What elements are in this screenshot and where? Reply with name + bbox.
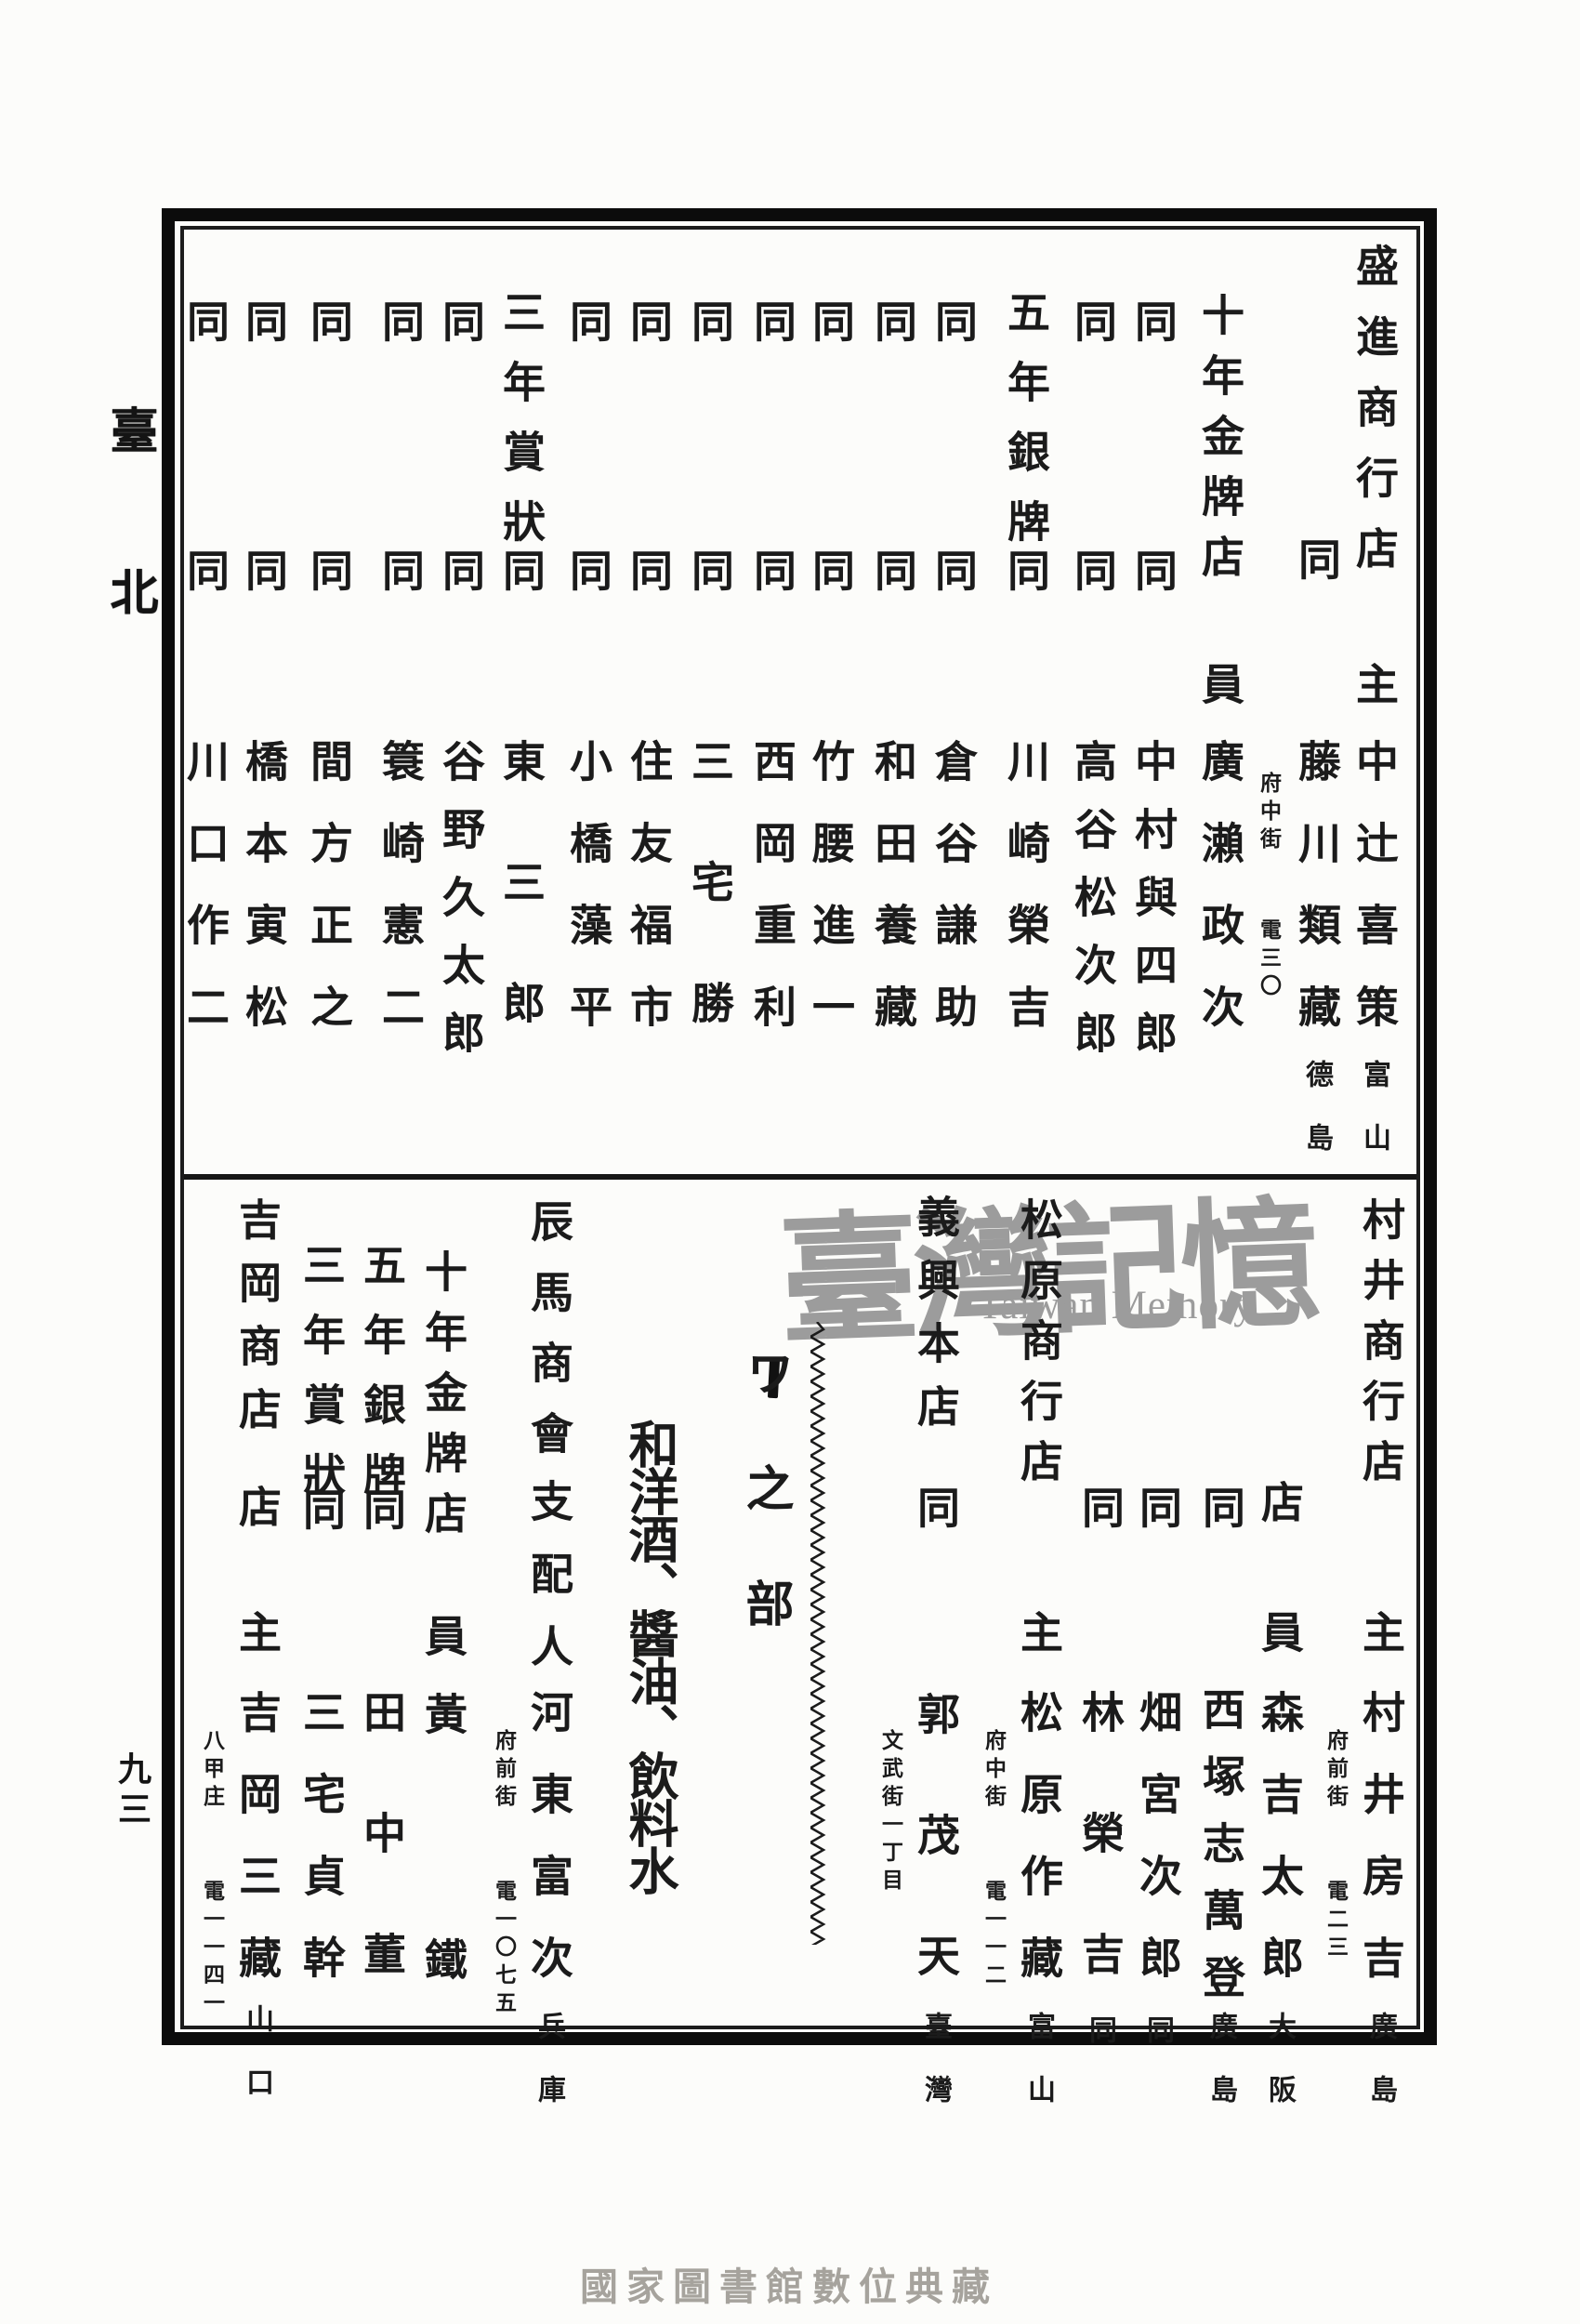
ditto-mark: 同: [931, 548, 974, 591]
role-label: 員: [1198, 662, 1241, 705]
person-name: 森吉太郎: [1257, 1690, 1300, 2017]
person-name: 田中董: [360, 1690, 402, 2053]
role-label: 主: [1352, 662, 1395, 705]
person-name: 谷野久太郎: [439, 739, 481, 1078]
ditto-mark: 同: [914, 1486, 956, 1528]
phone-note: 電一一二: [983, 1880, 1005, 1991]
ditto-mark: 同: [566, 548, 609, 591]
ditto-mark: 同: [871, 548, 914, 591]
shop-title: 村井商行店: [1359, 1197, 1402, 1499]
ditto-mark: 同: [626, 299, 669, 342]
person-name: 和田養藏: [871, 739, 914, 1066]
phone-note: 電一〇七五: [494, 1880, 515, 2019]
role-label: 店: [1257, 1480, 1300, 1523]
person-name: 三宅勝: [688, 739, 731, 1102]
place-label: 廣島: [1206, 2012, 1234, 2138]
ditto-mark: 同: [1071, 299, 1113, 342]
place-label: 兵庫: [534, 2012, 562, 2138]
award-title: 五年銀牌: [1004, 290, 1047, 569]
address-note: 府中街: [1258, 772, 1280, 855]
ditto-mark: 同: [1199, 1486, 1242, 1528]
role-label: 主: [1017, 1610, 1060, 1653]
ditto-mark: 同: [183, 548, 226, 591]
role-label: 主: [1359, 1610, 1402, 1653]
person-name: 中辻喜策: [1352, 739, 1395, 1066]
ditto-mark: 同: [1131, 548, 1174, 591]
person-name: 松原作藏: [1017, 1690, 1060, 2017]
ditto-mark: 同: [183, 299, 226, 342]
address-note: 府前街: [494, 1729, 515, 1813]
ditto-mark: 同: [1131, 299, 1174, 342]
person-name: 高谷松次郎: [1071, 739, 1113, 1078]
place-label: 富山: [1360, 1060, 1388, 1186]
section-divider-rule: [184, 1174, 1416, 1180]
role-label: 員: [421, 1614, 464, 1657]
award-title: 五年銀牌: [360, 1243, 402, 1522]
person-name: 河東富次: [527, 1690, 570, 2017]
ditto-mark: 同: [809, 299, 851, 342]
section-title: 和洋酒、醬油、飲料水: [624, 1419, 674, 1893]
ditto-mark: 同: [1078, 1486, 1121, 1528]
place-label: 臺灣: [921, 2012, 949, 2138]
page-number: 九三: [115, 1751, 149, 1831]
role-label: 店: [235, 1485, 278, 1527]
place-label: 德島: [1302, 1060, 1330, 1186]
section-header: ワ之部: [740, 1348, 788, 1694]
phone-note: 電二三: [1325, 1880, 1347, 1963]
ditto-mark: 同: [242, 299, 284, 342]
award-title: 十年金牌店: [421, 1249, 464, 1552]
ditto-mark: 同: [360, 1487, 402, 1530]
person-name: 廣瀨政次: [1198, 739, 1241, 1066]
ditto-mark: 同: [688, 299, 731, 342]
shop-title: 盛進商行店: [1352, 244, 1395, 597]
person-name: 小橋藻平: [566, 739, 609, 1066]
person-name: 畑宮次郎: [1136, 1690, 1178, 2017]
ditto-mark: 同: [378, 299, 421, 342]
ditto-mark: 同: [1136, 1486, 1178, 1528]
person-name: 西岡重利: [750, 739, 793, 1066]
place-label: 同: [1086, 2015, 1113, 2079]
person-name: 東三郎: [499, 739, 542, 1102]
ditto-mark: 同: [1004, 548, 1047, 591]
place-label: 廣島: [1366, 2012, 1394, 2138]
person-name: 中村與四郎: [1131, 739, 1174, 1078]
person-name: 黃鐵: [421, 1692, 464, 2183]
ditto-mark: 同: [688, 548, 731, 591]
person-name: 簑崎憲二: [378, 739, 421, 1066]
address-note: 八甲庄: [202, 1729, 223, 1813]
shop-title: 辰馬商會: [527, 1199, 570, 1482]
person-name: 吉岡三藏: [235, 1690, 278, 2017]
ditto-mark: 同: [1071, 548, 1113, 591]
place-label: 同: [1143, 2015, 1171, 2079]
address-note: 文武街一丁目: [880, 1729, 902, 1896]
person-name: 川口作二: [183, 739, 226, 1066]
ditto-mark: 同: [750, 548, 793, 591]
place-label: 大阪: [1265, 2012, 1293, 2138]
person-name: 藤川類藏: [1295, 739, 1337, 1066]
award-title: 十年金牌店: [1198, 293, 1241, 595]
shop-title: 松原商行店: [1017, 1197, 1060, 1499]
person-name: 間方正之: [307, 739, 349, 1066]
ditto-mark: 同: [439, 299, 481, 342]
ditto-mark: 同: [439, 548, 481, 591]
ditto-mark: 同: [307, 299, 349, 342]
shop-title: 義興本店: [914, 1195, 956, 1447]
person-name: 三宅貞幹: [299, 1690, 342, 2017]
ditto-mark: 同: [1295, 537, 1337, 580]
phone-note: 電三〇: [1258, 918, 1280, 1002]
award-title: 三年賞狀: [299, 1243, 342, 1522]
ditto-mark: 同: [626, 548, 669, 591]
person-name: 住友福市: [626, 739, 669, 1066]
award-title: 三年賞狀: [499, 290, 542, 569]
ditto-mark: 同: [750, 299, 793, 342]
person-name: 竹腰進一: [809, 739, 851, 1066]
ditto-mark: 同: [809, 548, 851, 591]
ditto-mark: 同: [499, 548, 542, 591]
ditto-mark: 同: [871, 299, 914, 342]
role-label: 員: [1257, 1610, 1300, 1653]
ditto-mark: 同: [307, 548, 349, 591]
role-label: 主: [235, 1610, 278, 1653]
scanned-directory-page: 臺灣記憶 Taiwan Memory 臺北 九三 盛進商行店主中辻喜策富山同府中…: [0, 0, 1580, 2324]
person-name: 倉谷謙助: [931, 739, 974, 1066]
phone-note: 電一一四一: [202, 1880, 223, 2019]
place-label: 富山: [1024, 2012, 1052, 2138]
address-note: 府中街: [983, 1729, 1005, 1813]
archive-caption: 國家圖書館數位典藏: [580, 2255, 998, 2311]
person-name: 郭茂天: [914, 1692, 956, 2054]
person-name: 林榮吉: [1078, 1690, 1121, 2053]
shop-title: 吉岡商店: [235, 1197, 278, 1450]
ditto-mark: 同: [378, 548, 421, 591]
role-label: 支配人: [527, 1479, 570, 1697]
person-name: 川崎榮吉: [1004, 739, 1047, 1066]
ditto-mark: 同: [299, 1487, 342, 1530]
person-name: 西塚志萬登: [1199, 1687, 1242, 2022]
person-name: 橋本寅松: [242, 739, 284, 1066]
person-name: 村井房吉: [1359, 1690, 1402, 2017]
ditto-mark: 同: [931, 299, 974, 342]
margin-label: 臺北: [104, 405, 152, 729]
wavy-divider: [810, 1322, 831, 1949]
ditto-mark: 同: [566, 299, 609, 342]
place-label: 山口: [243, 2004, 270, 2131]
address-note: 府前街: [1325, 1729, 1347, 1813]
ditto-mark: 同: [242, 548, 284, 591]
